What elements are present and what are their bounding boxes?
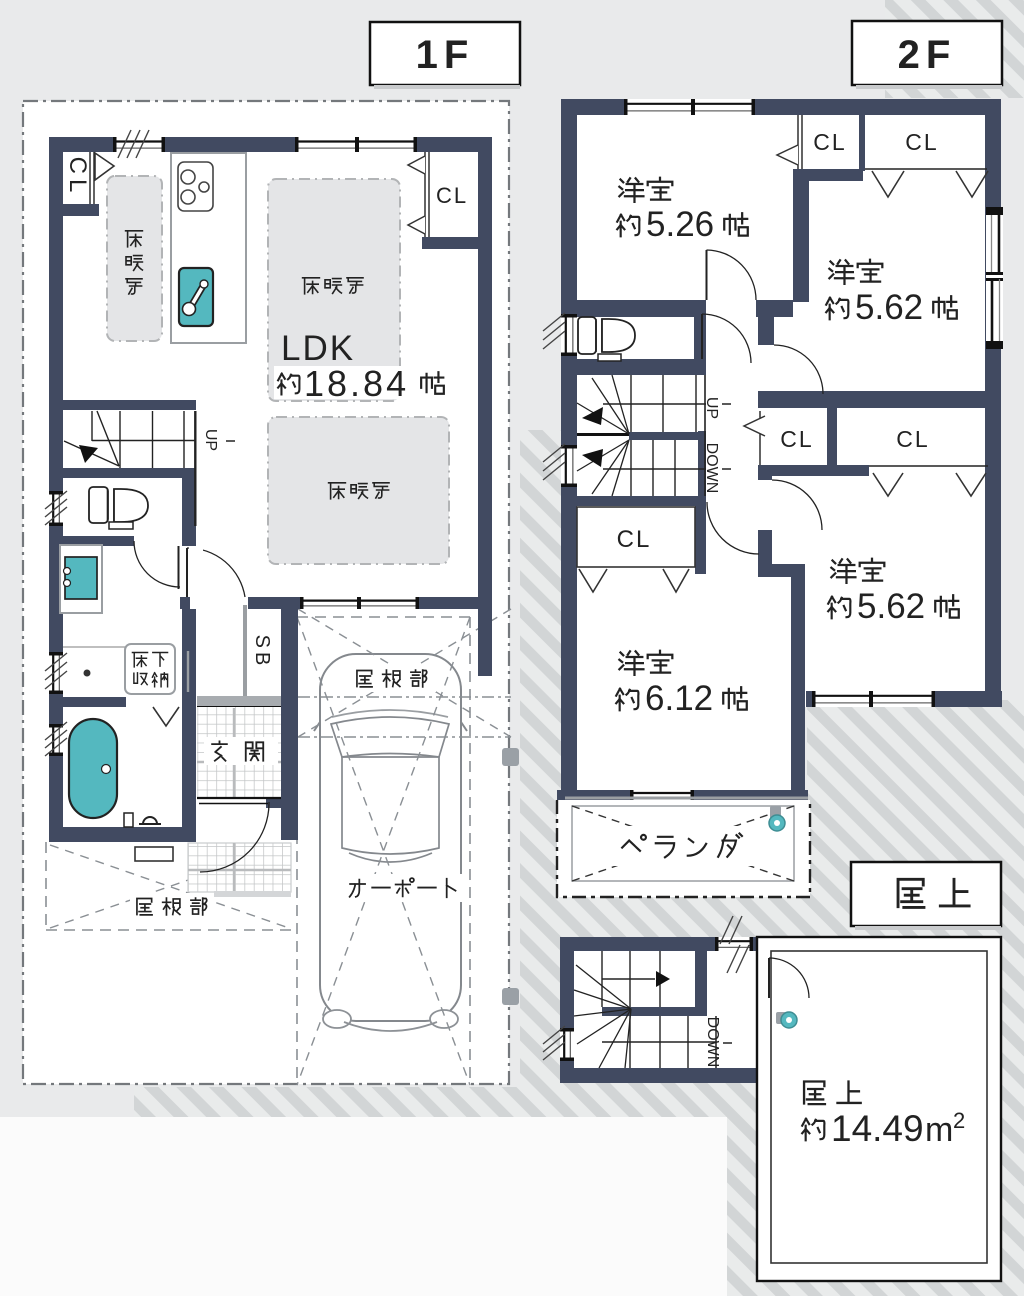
svg-text:CL: CL [64,157,91,198]
svg-text:2F: 2F [898,33,957,77]
svg-text:CL: CL [436,183,468,208]
svg-text:SB: SB [251,635,273,670]
svg-text:UP: UP [202,429,219,451]
svg-text:5.26: 5.26 [646,205,714,244]
svg-text:5.62: 5.62 [857,587,925,626]
svg-text:DOWN: DOWN [704,1017,721,1068]
svg-text:2: 2 [953,1108,965,1133]
svg-text:CL: CL [813,129,846,155]
svg-text:CL: CL [617,526,652,553]
svg-text:CL: CL [780,426,813,452]
svg-text:CL: CL [896,426,929,452]
svg-text:14.49: 14.49 [831,1108,924,1149]
svg-text:6.12: 6.12 [645,679,713,718]
svg-text:CL: CL [905,129,938,155]
svg-text:5.62: 5.62 [855,288,923,327]
svg-text:1F: 1F [416,33,475,77]
svg-text:m: m [925,1111,953,1149]
svg-text:DOWN: DOWN [703,443,720,494]
svg-text:18.84: 18.84 [304,363,409,404]
svg-text:UP: UP [703,397,720,419]
